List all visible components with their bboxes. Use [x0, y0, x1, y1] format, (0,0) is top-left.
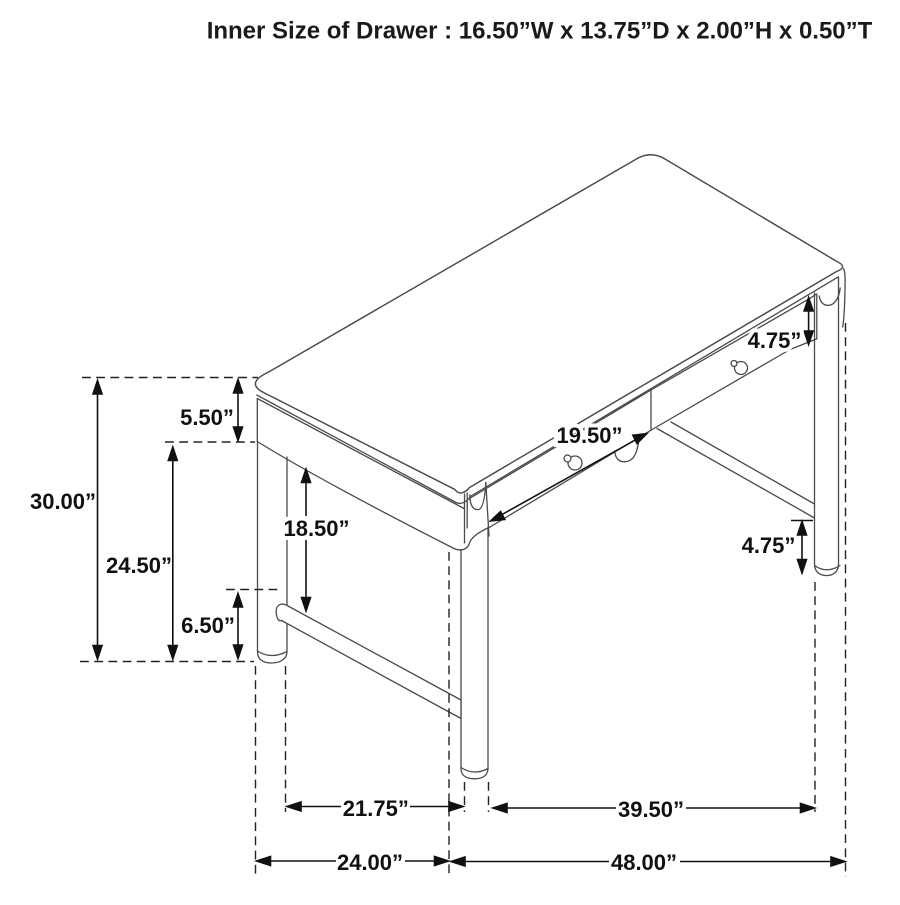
svg-text:18.50”: 18.50”	[283, 516, 349, 541]
svg-text:5.50”: 5.50”	[180, 405, 234, 430]
svg-text:39.50”: 39.50”	[618, 797, 684, 822]
svg-text:24.50”: 24.50”	[106, 553, 172, 578]
svg-text:24.00”: 24.00”	[337, 850, 403, 875]
svg-text:4.75”: 4.75”	[742, 533, 796, 558]
svg-text:4.75”: 4.75”	[748, 328, 802, 353]
svg-text:19.50”: 19.50”	[556, 423, 622, 448]
svg-text:Inner Size of Drawer : 16.50”W: Inner Size of Drawer : 16.50”W x 13.75”D…	[207, 18, 873, 45]
svg-text:21.75”: 21.75”	[343, 796, 409, 821]
svg-text:6.50”: 6.50”	[181, 613, 235, 638]
svg-text:30.00”: 30.00”	[30, 489, 96, 514]
svg-text:48.00”: 48.00”	[611, 850, 677, 875]
